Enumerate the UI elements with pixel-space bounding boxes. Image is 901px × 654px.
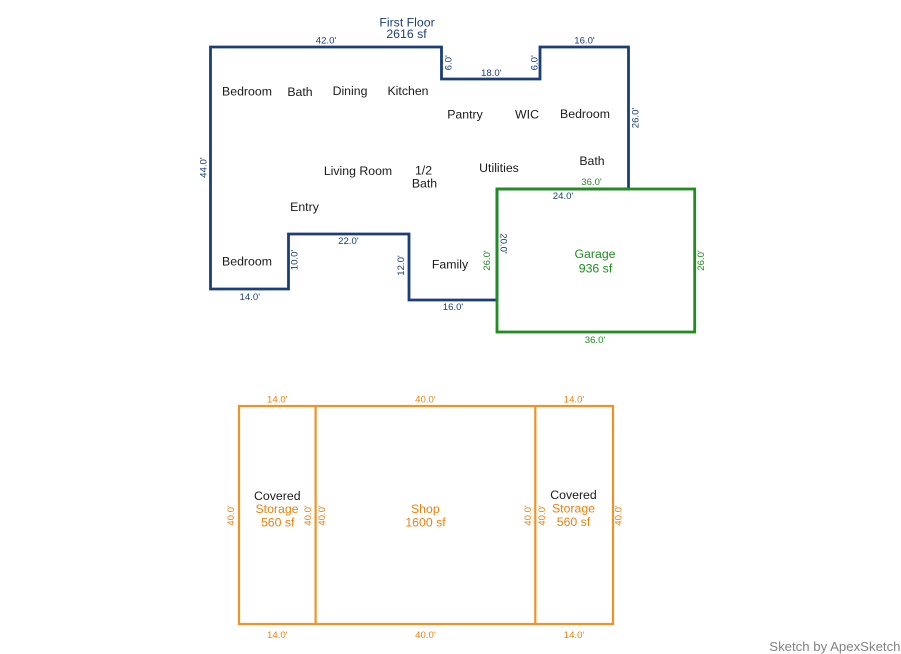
svg-text:40.0': 40.0' bbox=[226, 505, 237, 526]
svg-text:Pantry: Pantry bbox=[447, 108, 483, 122]
svg-text:18.0': 18.0' bbox=[481, 68, 502, 79]
svg-text:12.0': 12.0' bbox=[396, 255, 407, 276]
svg-text:20.0': 20.0' bbox=[498, 233, 509, 254]
svg-text:10.0': 10.0' bbox=[289, 250, 300, 271]
svg-text:Bedroom: Bedroom bbox=[222, 255, 272, 269]
svg-text:40.0': 40.0' bbox=[317, 505, 328, 526]
svg-text:Bath: Bath bbox=[412, 177, 437, 191]
svg-text:Dining: Dining bbox=[333, 84, 368, 98]
svg-text:26.0': 26.0' bbox=[630, 108, 641, 129]
svg-text:WIC: WIC bbox=[515, 108, 539, 122]
svg-text:1/2: 1/2 bbox=[415, 164, 432, 178]
svg-text:Kitchen: Kitchen bbox=[387, 84, 428, 98]
svg-text:40.0': 40.0' bbox=[415, 394, 436, 405]
svg-text:Garage: Garage bbox=[574, 247, 615, 261]
svg-text:22.0': 22.0' bbox=[338, 236, 359, 247]
svg-text:14.0': 14.0' bbox=[564, 394, 585, 405]
svg-text:Living Room: Living Room bbox=[324, 164, 392, 178]
svg-text:14.0': 14.0' bbox=[267, 630, 288, 641]
svg-text:6.0': 6.0' bbox=[443, 55, 454, 70]
svg-text:Bath: Bath bbox=[579, 154, 604, 168]
svg-text:Shop: Shop bbox=[411, 502, 440, 516]
svg-text:Bath: Bath bbox=[287, 85, 312, 99]
svg-text:40.0': 40.0' bbox=[614, 505, 625, 526]
svg-text:14.0': 14.0' bbox=[564, 630, 585, 641]
svg-text:Covered: Covered bbox=[550, 488, 597, 502]
svg-text:560 sf: 560 sf bbox=[557, 515, 591, 529]
svg-text:16.0': 16.0' bbox=[574, 35, 595, 46]
svg-text:Entry: Entry bbox=[290, 200, 320, 214]
svg-text:36.0': 36.0' bbox=[581, 177, 602, 188]
svg-text:Sketch by ApexSketch: Sketch by ApexSketch bbox=[769, 639, 900, 654]
svg-text:Bedroom: Bedroom bbox=[560, 107, 610, 121]
svg-text:Bedroom: Bedroom bbox=[222, 85, 272, 99]
svg-text:40.0': 40.0' bbox=[523, 505, 534, 526]
svg-text:560 sf: 560 sf bbox=[261, 515, 295, 529]
svg-text:42.0': 42.0' bbox=[316, 36, 337, 47]
svg-text:36.0': 36.0' bbox=[585, 335, 606, 346]
svg-text:1600 sf: 1600 sf bbox=[405, 515, 446, 529]
svg-text:Covered: Covered bbox=[254, 489, 301, 503]
svg-text:14.0': 14.0' bbox=[240, 292, 261, 303]
svg-text:24.0': 24.0' bbox=[553, 191, 574, 202]
svg-text:Storage: Storage bbox=[255, 502, 298, 516]
svg-text:Storage: Storage bbox=[552, 502, 595, 516]
svg-text:40.0': 40.0' bbox=[303, 505, 314, 526]
svg-text:Family: Family bbox=[432, 258, 469, 272]
svg-text:Utilities: Utilities bbox=[479, 161, 519, 175]
svg-text:44.0': 44.0' bbox=[198, 157, 209, 178]
svg-text:40.0': 40.0' bbox=[537, 505, 548, 526]
svg-text:16.0': 16.0' bbox=[443, 302, 464, 313]
svg-text:26.0': 26.0' bbox=[482, 250, 493, 271]
svg-text:14.0': 14.0' bbox=[267, 394, 288, 405]
svg-text:936 sf: 936 sf bbox=[579, 262, 613, 276]
svg-text:26.0': 26.0' bbox=[696, 250, 707, 271]
svg-text:6.0': 6.0' bbox=[530, 55, 541, 70]
svg-text:2616 sf: 2616 sf bbox=[386, 27, 427, 41]
svg-text:40.0': 40.0' bbox=[415, 630, 436, 641]
